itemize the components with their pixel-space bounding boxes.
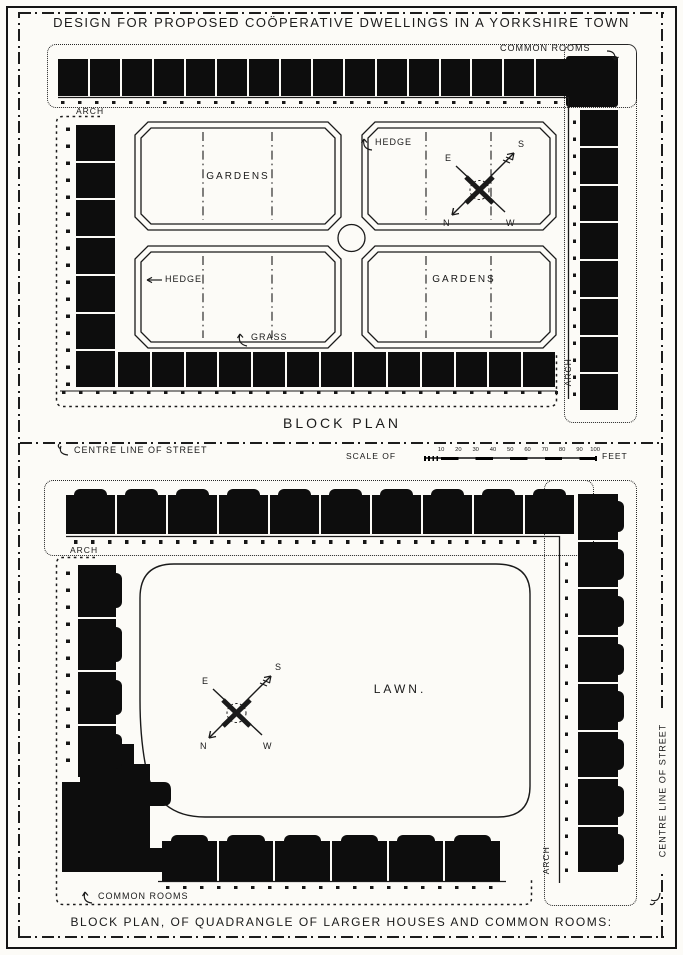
- bottom-plan-pavement-dots-left: [66, 562, 70, 762]
- bottom-plan-arch-top-label: ARCH: [70, 546, 98, 555]
- house-unit: [578, 494, 618, 540]
- bottom-plan-bottom-row-houses: [162, 841, 500, 881]
- scale-tick-label: 30: [462, 447, 479, 453]
- top-plan-grass-label: GRASS: [251, 333, 288, 342]
- house-unit: [270, 495, 319, 534]
- top-plan-gardens-lower-label: GARDENS: [414, 275, 514, 285]
- bottom-plan-arch-bottom-label: ARCH: [542, 840, 551, 880]
- house-unit: [275, 841, 330, 881]
- bottom-plan-pavement-dots-top: [74, 540, 548, 544]
- house-unit: [423, 495, 472, 534]
- drawing-sheet: DESIGN FOR PROPOSED COÖPERATIVE DWELLING…: [0, 0, 683, 955]
- house-unit: [578, 589, 618, 635]
- top-plan-arch-left-label: ARCH: [76, 107, 104, 116]
- top-plan-compass-east: E: [445, 154, 452, 163]
- top-plan-compass-west: W: [506, 219, 516, 228]
- bottom-plan-compass-east: E: [202, 677, 209, 686]
- top-plan-compass-north: N: [443, 219, 451, 228]
- house-unit: [578, 779, 618, 825]
- bottom-plan-caption: BLOCK PLAN, OF QUADRANGLE OF LARGER HOUS…: [60, 916, 623, 928]
- house-unit: [578, 827, 618, 873]
- bottom-plan-top-row-houses: [66, 495, 574, 534]
- house-unit: [372, 495, 421, 534]
- house-unit: [78, 565, 116, 617]
- house-unit: [219, 841, 274, 881]
- scale-prefix-label: SCALE OF: [346, 452, 396, 461]
- house-unit: [168, 495, 217, 534]
- top-plan-compass-south: S: [518, 140, 525, 149]
- house-unit: [162, 841, 217, 881]
- bottom-plan-right-column-houses: [578, 494, 618, 872]
- house-unit: [66, 495, 115, 534]
- house-unit: [78, 619, 116, 671]
- bottom-plan-compass-north: N: [200, 742, 208, 751]
- house-unit: [445, 841, 500, 881]
- house-unit: [525, 495, 574, 534]
- bottom-plan-compass-west: W: [263, 742, 273, 751]
- house-unit: [117, 495, 166, 534]
- scale-tick-label: 90: [565, 447, 582, 453]
- scale-tick-label: 80: [548, 447, 565, 453]
- bottom-plan-pavement-dots-right: [565, 556, 569, 872]
- house-unit: [78, 672, 116, 724]
- scale-tick-label: 40: [479, 447, 496, 453]
- top-plan-caption: BLOCK PLAN: [242, 416, 442, 430]
- top-plan-hedge-upper-label: HEDGE: [375, 138, 412, 147]
- house-unit: [474, 495, 523, 534]
- scale-tick-label: 100: [583, 447, 600, 453]
- bottom-plan-compass-south: S: [275, 663, 282, 672]
- top-plan-gardens-upper-label: GARDENS: [188, 172, 288, 182]
- scale-suffix-label: FEET: [602, 452, 628, 461]
- house-unit: [332, 841, 387, 881]
- scale-tick-label: 70: [531, 447, 548, 453]
- house-unit: [78, 726, 116, 778]
- bottom-plan-common-rooms-label: COMMON ROOMS: [96, 892, 191, 901]
- top-plan-hedge-lower-label: HEDGE: [165, 275, 202, 284]
- house-unit: [578, 637, 618, 683]
- bottom-plan-left-column-houses: [78, 565, 116, 777]
- house-unit: [578, 732, 618, 778]
- top-plan-arch-right-label: ARCH: [564, 352, 573, 392]
- bottom-plan-centre-line-right-label: CENTRE LINE OF STREET: [659, 710, 668, 872]
- scale-tick-label: 10: [427, 447, 444, 453]
- house-unit: [321, 495, 370, 534]
- house-unit: [389, 841, 444, 881]
- scale-bar: [424, 456, 597, 461]
- bottom-plan-lawn-label: LAWN.: [350, 683, 450, 695]
- house-unit: [219, 495, 268, 534]
- scale-tick-label: 60: [513, 447, 530, 453]
- house-unit: [578, 542, 618, 588]
- top-plan-common-rooms-label: COMMON ROOMS: [500, 44, 591, 53]
- scale-tick-label: 50: [496, 447, 513, 453]
- scale-tick-label: 20: [444, 447, 461, 453]
- centre-line-of-street-label: CENTRE LINE OF STREET: [72, 446, 210, 455]
- house-unit: [578, 684, 618, 730]
- bottom-plan-pavement-dots-bottom: [166, 886, 498, 890]
- scale-ticks: 102030405060708090100: [424, 447, 597, 453]
